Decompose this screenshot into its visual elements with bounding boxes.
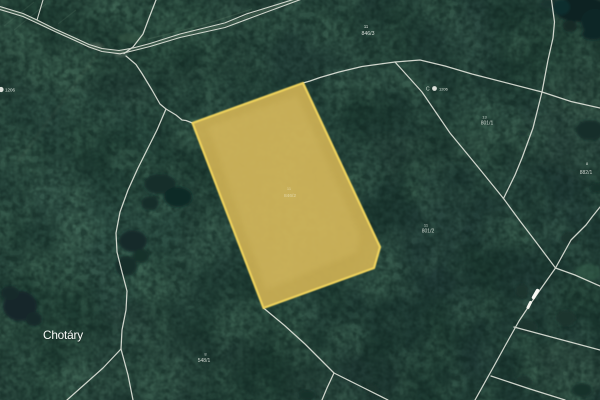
svg-text:548/1: 548/1: [198, 358, 211, 364]
svg-text:882/1: 882/1: [580, 170, 593, 176]
svg-text:13: 13: [482, 115, 487, 120]
svg-text:C: C: [426, 87, 430, 93]
svg-text:1206: 1206: [439, 87, 449, 92]
svg-text:1206: 1206: [5, 88, 16, 93]
svg-text:801/2: 801/2: [422, 229, 435, 235]
svg-text:Chotáry: Chotáry: [43, 328, 83, 342]
svg-text:801/1: 801/1: [481, 121, 494, 127]
svg-text:846/3: 846/3: [362, 31, 375, 37]
svg-text:846/2: 846/2: [284, 193, 296, 199]
svg-text:11: 11: [364, 24, 369, 29]
